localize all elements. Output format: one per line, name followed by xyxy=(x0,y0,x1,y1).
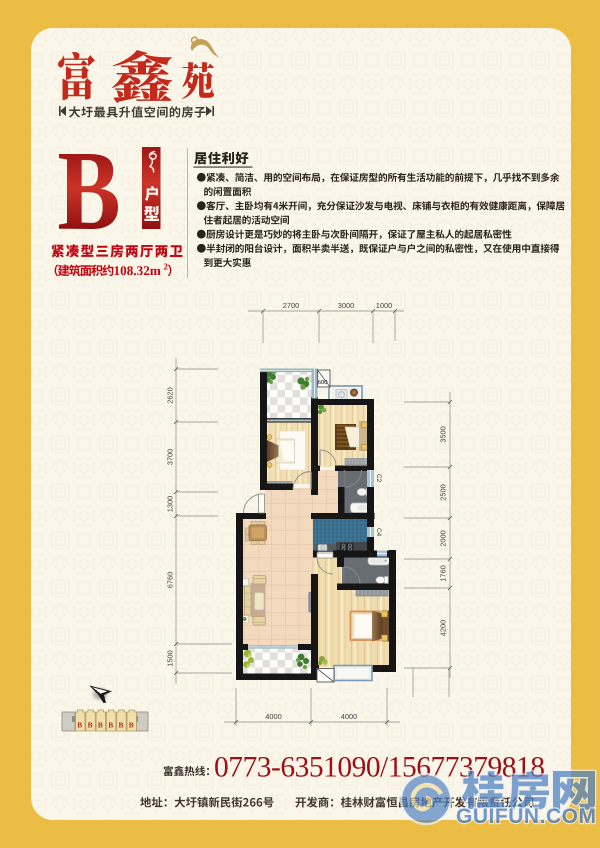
svg-text:B: B xyxy=(108,721,113,730)
svg-text:B: B xyxy=(98,721,103,730)
svg-text:600: 600 xyxy=(318,380,328,386)
svg-text:2500: 2500 xyxy=(439,484,448,500)
svg-text:2700: 2700 xyxy=(283,301,299,310)
svg-text:6760: 6760 xyxy=(166,572,175,588)
svg-text:2000: 2000 xyxy=(439,530,448,546)
svg-text:3500: 3500 xyxy=(439,426,448,442)
svg-text:C4: C4 xyxy=(375,528,382,537)
svg-text:B: B xyxy=(119,721,124,730)
svg-text:B: B xyxy=(129,721,134,730)
svg-text:GUIFUN.COM: GUIFUN.COM xyxy=(456,805,596,828)
svg-text:1300: 1300 xyxy=(166,496,175,512)
svg-text:2620: 2620 xyxy=(166,387,175,403)
svg-text:1760: 1760 xyxy=(439,565,448,581)
svg-text:B: B xyxy=(77,721,82,730)
svg-text:3000: 3000 xyxy=(338,301,354,310)
svg-text:C2: C2 xyxy=(375,474,382,483)
svg-text:4000: 4000 xyxy=(341,712,357,721)
svg-text:3700: 3700 xyxy=(166,449,175,465)
svg-text:4000: 4000 xyxy=(265,712,281,721)
svg-text:4200: 4200 xyxy=(439,620,448,636)
svg-text:B: B xyxy=(88,721,93,730)
svg-text:1500: 1500 xyxy=(166,650,175,666)
svg-text:1000: 1000 xyxy=(376,301,392,310)
